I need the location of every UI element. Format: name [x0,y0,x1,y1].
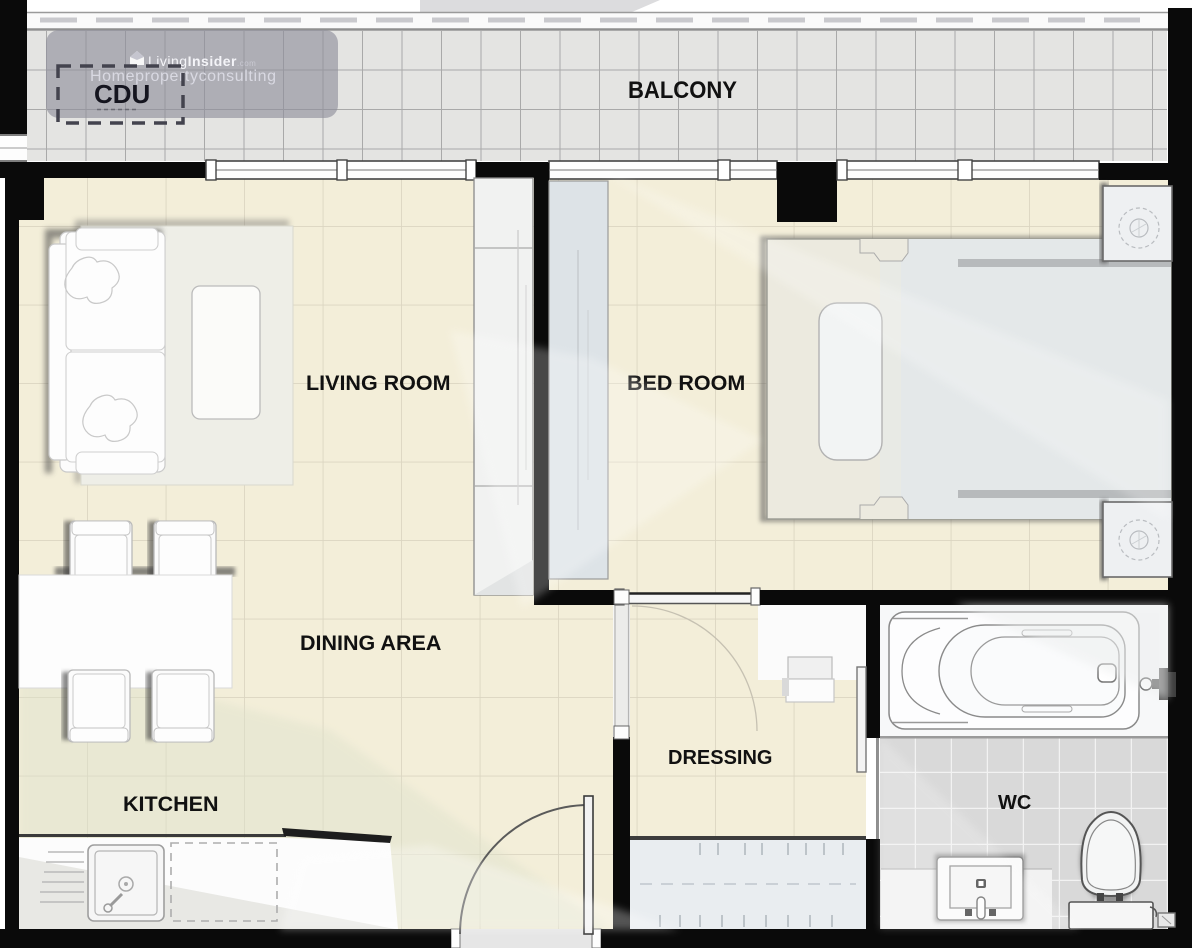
svg-text:DINING AREA: DINING AREA [300,631,441,655]
svg-text:CDU: CDU [94,79,150,109]
svg-text:KITCHEN: KITCHEN [123,792,219,816]
svg-text:BALCONY: BALCONY [628,77,737,104]
svg-text:LIVING ROOM: LIVING ROOM [306,371,451,395]
svg-text:WC: WC [998,792,1031,814]
svg-text:DRESSING: DRESSING [668,747,772,769]
